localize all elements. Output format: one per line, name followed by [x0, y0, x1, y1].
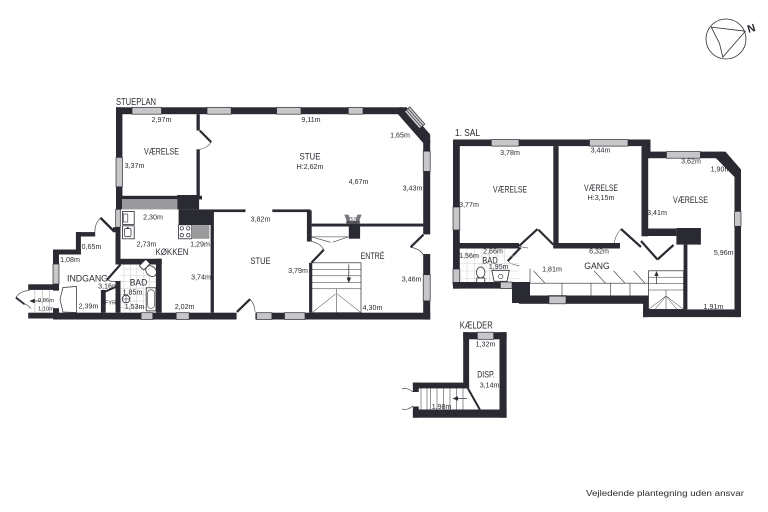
svg-text:VÆRELSE: VÆRELSE: [584, 183, 618, 194]
svg-text:3,41m: 3,41m: [647, 209, 667, 217]
svg-text:9,11m: 9,11m: [301, 116, 320, 124]
svg-text:2,02m: 2,02m: [175, 303, 195, 311]
svg-text:3,77m: 3,77m: [459, 201, 479, 209]
svg-text:H:2,62m: H:2,62m: [297, 163, 324, 171]
svg-text:2,30m: 2,30m: [143, 214, 163, 222]
svg-text:DISP.: DISP.: [477, 369, 495, 380]
svg-text:1,10m: 1,10m: [38, 307, 54, 313]
svg-text:H:3,15m: H:3,15m: [588, 194, 615, 202]
svg-text:3,16m: 3,16m: [98, 283, 118, 291]
svg-text:3,46m: 3,46m: [402, 275, 422, 283]
svg-text:2,39m: 2,39m: [79, 303, 99, 311]
svg-text:STUE: STUE: [251, 256, 271, 267]
svg-text:3,62m: 3,62m: [681, 158, 701, 166]
svg-text:4,30m: 4,30m: [363, 304, 383, 312]
svg-text:2,66m: 2,66m: [483, 248, 503, 256]
svg-text:0,86m: 0,86m: [38, 298, 54, 304]
svg-text:1,56m: 1,56m: [459, 252, 479, 260]
svg-text:VÆRELSE: VÆRELSE: [493, 185, 527, 196]
svg-text:3,82m: 3,82m: [251, 216, 271, 224]
svg-text:4,67m: 4,67m: [349, 178, 369, 186]
svg-text:VÆRELSE: VÆRELSE: [673, 195, 708, 206]
svg-text:1,29m: 1,29m: [190, 241, 210, 249]
svg-text:3,14m: 3,14m: [480, 381, 500, 389]
svg-text:1,85m: 1,85m: [123, 289, 143, 297]
svg-text:BAD: BAD: [130, 278, 148, 289]
svg-text:1,65m: 1,65m: [390, 132, 410, 140]
svg-text:KØKKEN: KØKKEN: [156, 247, 189, 258]
svg-text:STUEPLAN: STUEPLAN: [116, 97, 156, 108]
svg-text:1,95m: 1,95m: [489, 263, 509, 271]
svg-text:1,91m: 1,91m: [704, 303, 724, 311]
svg-text:6,32m: 6,32m: [589, 248, 609, 256]
svg-text:3,44m: 3,44m: [591, 147, 611, 155]
svg-text:1,53m: 1,53m: [125, 303, 145, 311]
svg-text:2,73m: 2,73m: [137, 241, 157, 249]
svg-text:FYR: FYR: [105, 301, 117, 307]
svg-text:VÆRELSE: VÆRELSE: [144, 147, 179, 158]
svg-text:GANG: GANG: [584, 261, 609, 272]
svg-text:3,79m: 3,79m: [288, 267, 308, 275]
svg-text:3,37m: 3,37m: [125, 162, 145, 170]
svg-text:PEJS: PEJS: [349, 217, 358, 221]
svg-text:1,90m: 1,90m: [711, 166, 731, 174]
svg-text:1,81m: 1,81m: [542, 266, 562, 274]
svg-text:1,08m: 1,08m: [60, 256, 80, 264]
svg-text:3,78m: 3,78m: [500, 149, 520, 157]
svg-text:3,74m: 3,74m: [191, 274, 211, 282]
svg-text:Vejledende plantegning uden an: Vejledende plantegning uden ansvar: [586, 488, 744, 498]
svg-text:2,97m: 2,97m: [152, 116, 172, 124]
svg-text:ENTRÉ: ENTRÉ: [361, 251, 385, 262]
svg-text:1,32m: 1,32m: [476, 340, 496, 348]
svg-text:1,98m: 1,98m: [432, 403, 452, 411]
svg-text:1. SAL: 1. SAL: [455, 128, 480, 139]
svg-text:0,65m: 0,65m: [82, 243, 102, 251]
svg-text:STUE: STUE: [300, 152, 321, 163]
svg-text:5,96m: 5,96m: [714, 249, 734, 257]
svg-text:3,43m: 3,43m: [403, 185, 423, 193]
svg-text:KÆLDER: KÆLDER: [460, 321, 493, 332]
